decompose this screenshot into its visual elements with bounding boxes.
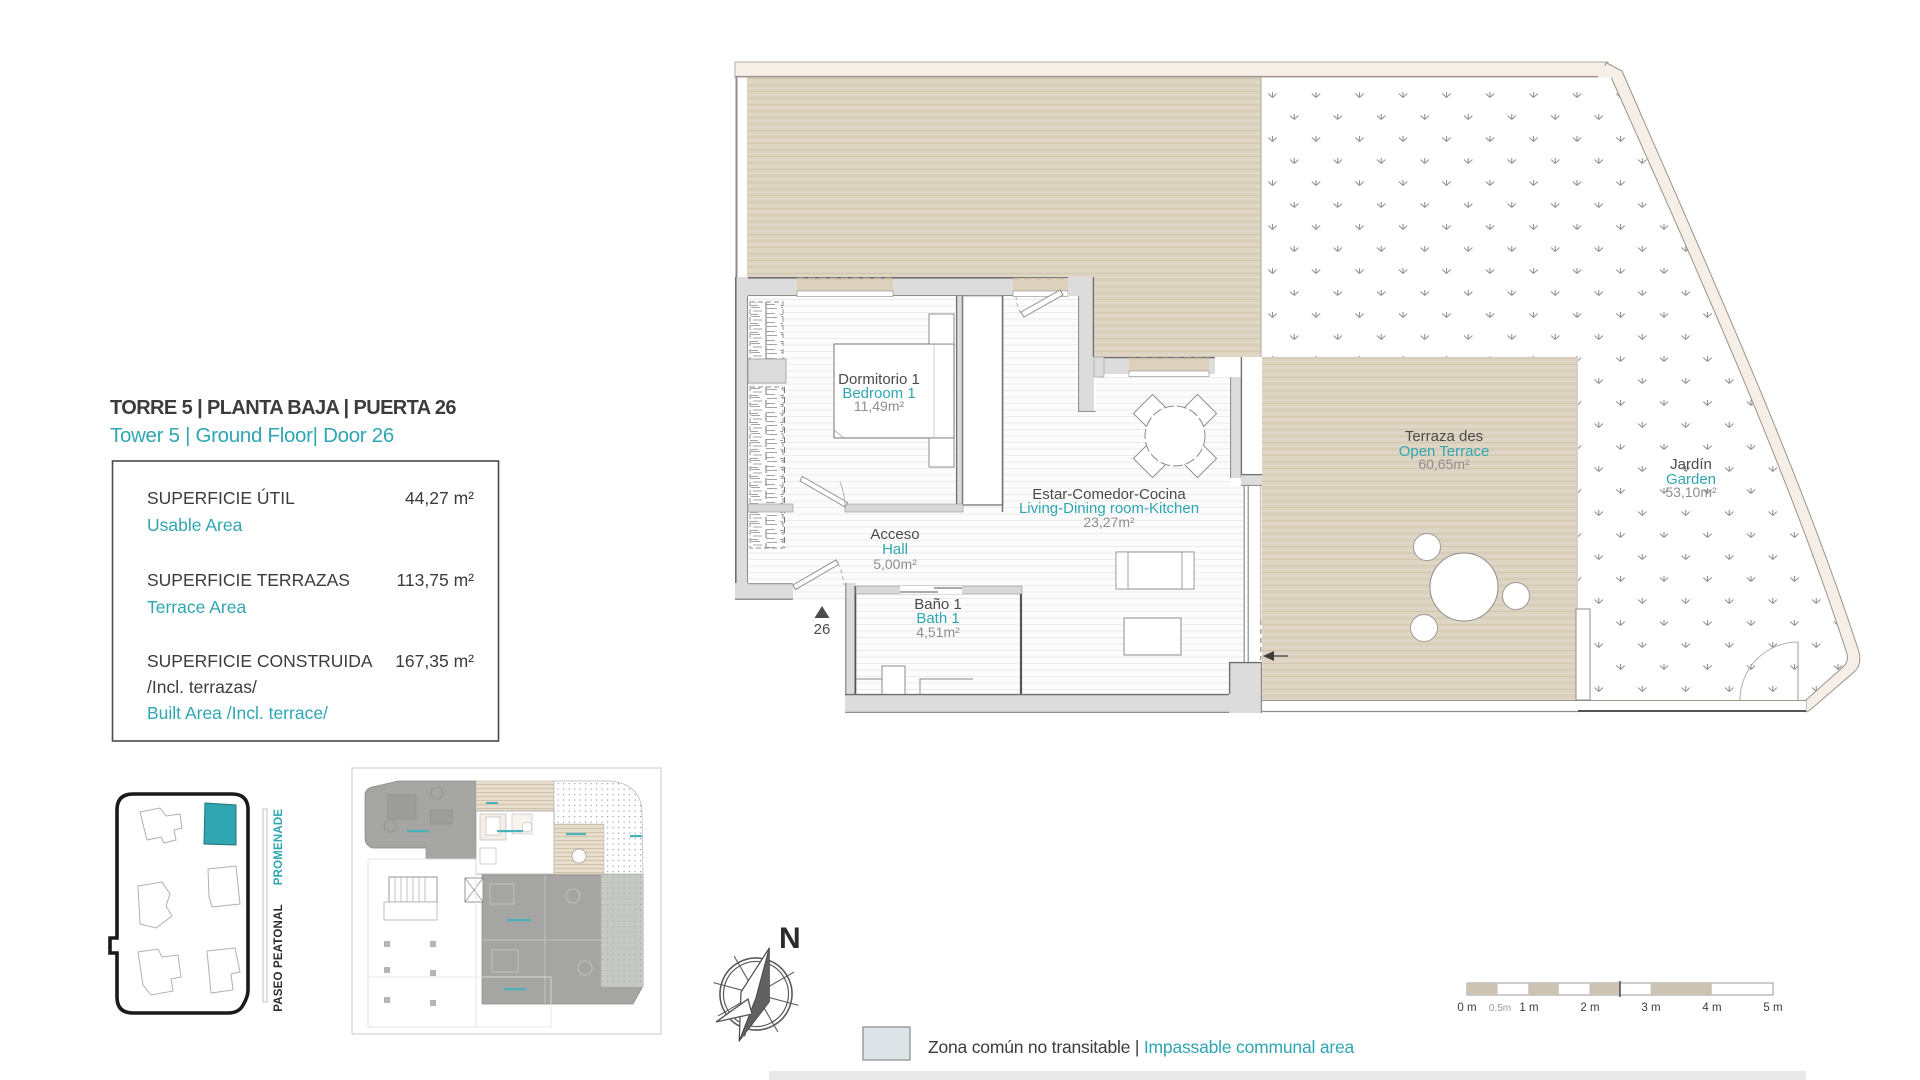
- svg-text:TORRE 5 | PLANTA BAJA | PUERTA: TORRE 5 | PLANTA BAJA | PUERTA 26: [110, 397, 456, 419]
- svg-text:4 m: 4 m: [1702, 1002, 1721, 1014]
- svg-text:0 m: 0 m: [1457, 1002, 1476, 1014]
- svg-text:11,49m²: 11,49m²: [854, 398, 905, 414]
- svg-text:Built Area /Incl. terrace/: Built Area /Incl. terrace/: [147, 703, 328, 723]
- svg-text:2 m: 2 m: [1580, 1002, 1599, 1014]
- svg-text:Terrace Area: Terrace Area: [147, 597, 246, 617]
- svg-text:3 m: 3 m: [1641, 1002, 1660, 1014]
- svg-text:Usable Area: Usable Area: [147, 515, 243, 535]
- svg-text:113,75 m²: 113,75 m²: [397, 570, 475, 590]
- svg-text:SUPERFICIE CONSTRUIDA: SUPERFICIE CONSTRUIDA: [147, 651, 373, 671]
- svg-text:23,27m²: 23,27m²: [1083, 514, 1135, 530]
- svg-text:/Incl. terrazas/: /Incl. terrazas/: [147, 677, 257, 697]
- svg-text:PROMENADE: PROMENADE: [273, 809, 285, 886]
- svg-text:0.5m: 0.5m: [1489, 1003, 1511, 1014]
- svg-text:5 m: 5 m: [1763, 1002, 1782, 1014]
- svg-text:4,51m²: 4,51m²: [916, 624, 960, 640]
- svg-text:SUPERFICIE TERRAZAS: SUPERFICIE TERRAZAS: [147, 570, 350, 590]
- svg-text:26: 26: [814, 621, 831, 638]
- svg-text:Zona común no transitable | Im: Zona común no transitable | Impassable c…: [928, 1037, 1355, 1057]
- svg-text:1 m: 1 m: [1519, 1002, 1538, 1014]
- svg-text:53,10m²: 53,10m²: [1665, 484, 1717, 500]
- svg-text:44,27 m²: 44,27 m²: [405, 488, 474, 508]
- svg-text:5,00m²: 5,00m²: [873, 556, 917, 572]
- svg-text:SUPERFICIE ÚTIL: SUPERFICIE ÚTIL: [147, 487, 295, 508]
- svg-text:N: N: [779, 922, 801, 955]
- svg-text:Tower 5 | Ground Floor| Door 2: Tower 5 | Ground Floor| Door 26: [110, 424, 394, 447]
- svg-text:60,65m²: 60,65m²: [1418, 456, 1470, 472]
- svg-text:167,35 m²: 167,35 m²: [395, 651, 474, 671]
- svg-text:PASEO PEATONAL: PASEO PEATONAL: [273, 904, 285, 1012]
